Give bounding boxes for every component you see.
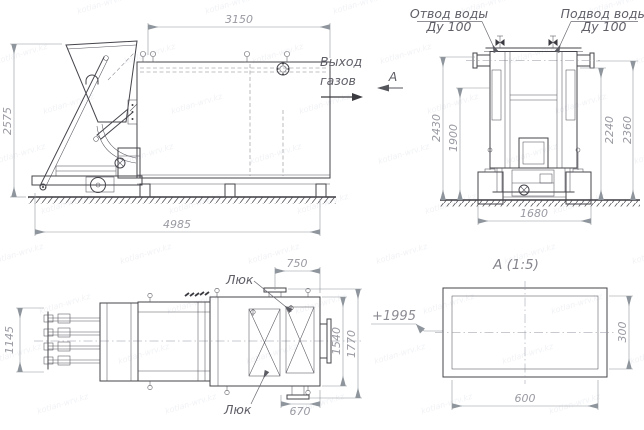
svg-text:kotlan-wrv.kz: kotlan-wrv.kz: [420, 392, 474, 416]
gas-flow-arrow-icon: [352, 93, 363, 101]
svg-text:kotlan-wrv.kz: kotlan-wrv.kz: [373, 342, 427, 366]
dim-detail-600: 600: [515, 392, 536, 405]
view-arrow-icon: [377, 85, 389, 92]
svg-text:kotlan-wrv.kz: kotlan-wrv.kz: [0, 142, 47, 166]
detail-title: А (1:5): [492, 257, 539, 273]
gas-outlet-label-line2: газов: [320, 73, 356, 88]
top-flange: [277, 63, 289, 75]
svg-text:kotlan-wrv.kz: kotlan-wrv.kz: [76, 0, 130, 16]
svg-text:kotlan-wrv.kz: kotlan-wrv.kz: [548, 392, 602, 416]
svg-text:kotlan-wrv.kz: kotlan-wrv.kz: [121, 142, 175, 166]
drawing-canvas: kotlan-wrv.kzkotlan-wrv.kzkotlan-wrv.kzk…: [0, 0, 644, 430]
dim-height-2240: 2240: [603, 116, 616, 144]
side-view-geometry: [28, 41, 336, 204]
svg-text:kotlan-wrv.kz: kotlan-wrv.kz: [294, 292, 348, 316]
svg-text:kotlan-wrv.kz: kotlan-wrv.kz: [42, 92, 96, 116]
gas-outlet-label-line1: Выход: [320, 54, 362, 69]
dim-feeder-1145: 1145: [3, 326, 16, 354]
svg-text:kotlan-wrv.kz: kotlan-wrv.kz: [40, 192, 94, 216]
dim-outer-1770: 1770: [345, 330, 358, 358]
svg-text:kotlan-wrv.kz: kotlan-wrv.kz: [377, 142, 431, 166]
svg-text:kotlan-wrv.kz: kotlan-wrv.kz: [426, 92, 480, 116]
svg-text:kotlan-wrv.kz: kotlan-wrv.kz: [332, 0, 386, 16]
svg-text:kotlan-wrv.kz: kotlan-wrv.kz: [501, 342, 555, 366]
end-view: Отвод воды Ду 100 Подвод воды Ду 100 243…: [410, 6, 644, 225]
foundation-block-left: [478, 172, 503, 204]
detail-view: А (1:5) 600 300: [435, 257, 633, 410]
water-inlet-callout: Подвод воды Ду 100: [557, 6, 644, 52]
elevation-arrow-icon: [416, 324, 425, 334]
svg-text:kotlan-wrv.kz: kotlan-wrv.kz: [0, 242, 45, 266]
svg-text:kotlan-wrv.kz: kotlan-wrv.kz: [245, 342, 299, 366]
svg-text:kotlan-wrv.kz: kotlan-wrv.kz: [635, 42, 644, 66]
dim-top-width: 3150: [225, 13, 253, 26]
dim-inner-1540: 1540: [330, 327, 343, 355]
plan-view-dimensions: 1145 750 670 1540 1770: [3, 257, 362, 418]
hatch-label-bottom: Люк: [223, 402, 252, 417]
svg-text:kotlan-wrv.kz: kotlan-wrv.kz: [38, 292, 92, 316]
side-view: 3150 2575 4985 Выход газов А: [1, 13, 403, 236]
svg-text:kotlan-wrv.kz: kotlan-wrv.kz: [550, 292, 604, 316]
view-direction-marker: А: [377, 69, 403, 92]
dim-top-750: 750: [287, 257, 308, 270]
svg-text:kotlan-wrv.kz: kotlan-wrv.kz: [422, 292, 476, 316]
svg-text:kotlan-wrv.kz: kotlan-wrv.kz: [168, 192, 222, 216]
dim-height-2360: 2360: [621, 116, 634, 144]
svg-text:kotlan-wrv.kz: kotlan-wrv.kz: [633, 142, 644, 166]
plan-view: 1145 750 670 1540 1770 Люк Люк +1995: [3, 257, 443, 418]
svg-text:kotlan-wrv.kz: kotlan-wrv.kz: [117, 342, 171, 366]
dim-total-length: 4985: [163, 218, 191, 231]
svg-text:kotlan-wrv.kz: kotlan-wrv.kz: [170, 92, 224, 116]
view-letter: А: [388, 69, 398, 84]
svg-text:kotlan-wrv.kz: kotlan-wrv.kz: [379, 42, 433, 66]
hatch-covers: [249, 305, 314, 376]
ground-hatch: [440, 201, 640, 207]
svg-text:kotlan-wrv.kz: kotlan-wrv.kz: [0, 0, 2, 16]
dim-total-height: 2575: [1, 107, 14, 135]
weld-marks: [185, 292, 209, 296]
elevation-value: +1995: [372, 309, 416, 324]
svg-text:kotlan-wrv.kz: kotlan-wrv.kz: [296, 192, 350, 216]
dim-detail-300: 300: [616, 322, 629, 343]
dim-bottom-670: 670: [290, 405, 311, 418]
svg-text:kotlan-wrv.kz: kotlan-wrv.kz: [0, 42, 49, 66]
svg-text:kotlan-wrv.kz: kotlan-wrv.kz: [298, 92, 352, 116]
dim-height-2430: 2430: [430, 114, 443, 142]
svg-text:kotlan-wrv.kz: kotlan-wrv.kz: [249, 142, 303, 166]
svg-text:kotlan-wrv.kz: kotlan-wrv.kz: [164, 392, 218, 416]
ground-hatch: [28, 198, 336, 204]
technical-drawing: kotlan-wrv.kzkotlan-wrv.kzkotlan-wrv.kzk…: [0, 0, 644, 430]
svg-text:kotlan-wrv.kz: kotlan-wrv.kz: [629, 342, 644, 366]
svg-text:kotlan-wrv.kz: kotlan-wrv.kz: [36, 392, 90, 416]
svg-text:kotlan-wrv.kz: kotlan-wrv.kz: [375, 242, 429, 266]
hatch-label-top: Люк: [225, 272, 254, 287]
svg-text:kotlan-wrv.kz: kotlan-wrv.kz: [505, 142, 559, 166]
svg-text:kotlan-wrv.kz: kotlan-wrv.kz: [631, 242, 644, 266]
svg-text:kotlan-wrv.kz: kotlan-wrv.kz: [119, 242, 173, 266]
dim-height-1900: 1900: [447, 124, 460, 152]
feeder-mechanism: [44, 303, 138, 381]
dim-base-1680: 1680: [520, 207, 548, 220]
